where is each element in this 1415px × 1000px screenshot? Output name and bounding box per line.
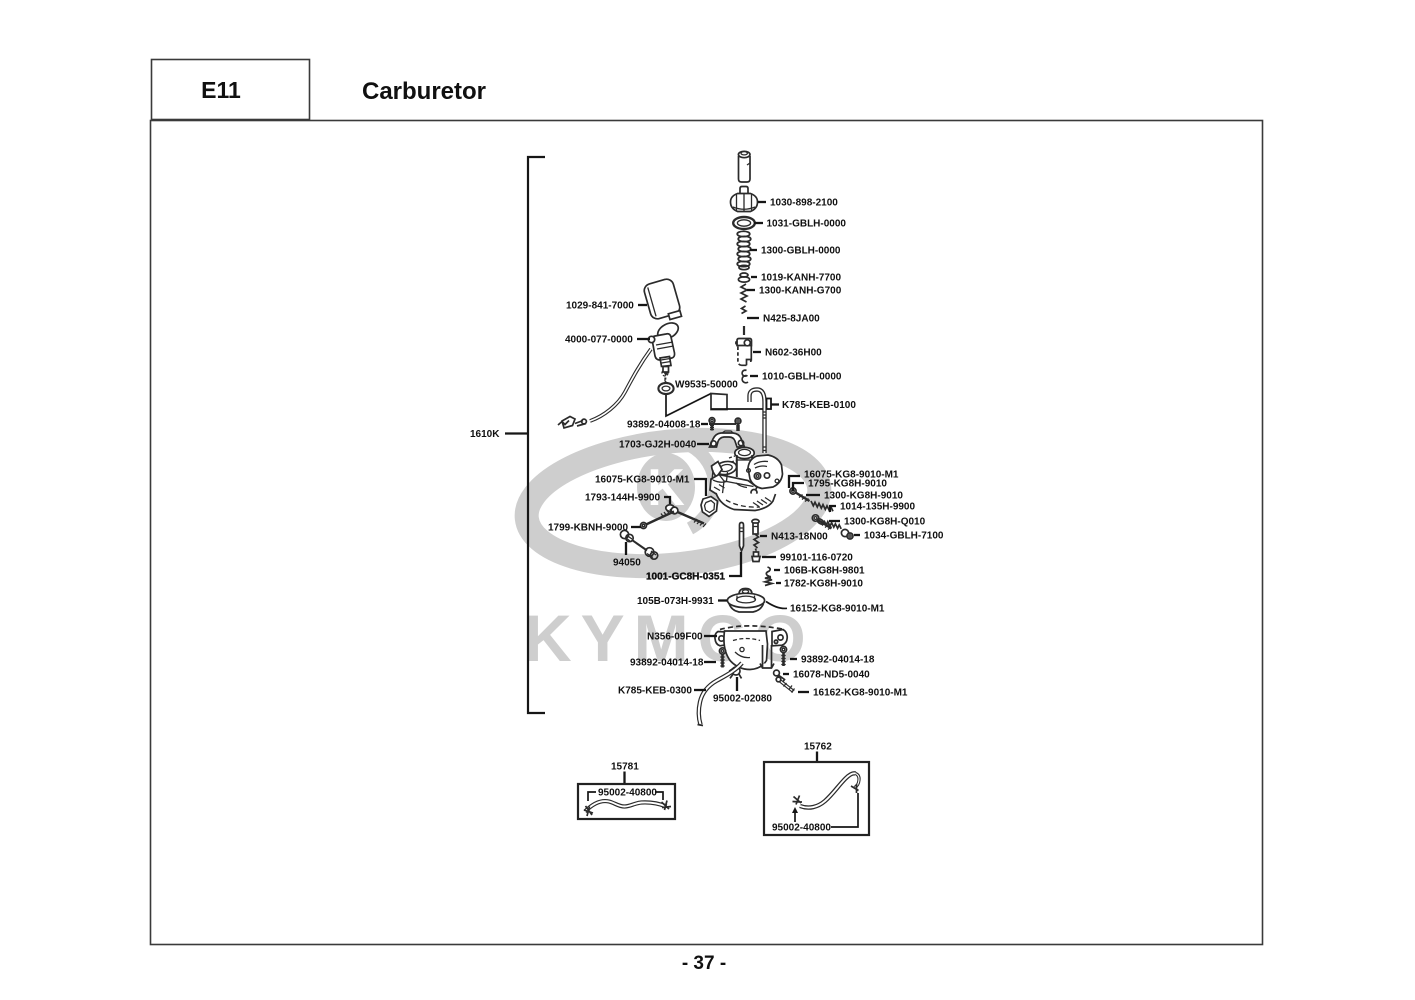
svg-text:15781: 15781 xyxy=(611,762,639,773)
svg-text:15762: 15762 xyxy=(804,742,832,753)
svg-text:1029-841-7000: 1029-841-7000 xyxy=(566,301,634,312)
svg-text:N413-18N00: N413-18N00 xyxy=(771,532,828,543)
svg-text:K785-KEB-0300: K785-KEB-0300 xyxy=(618,686,692,697)
svg-text:1001-GC8H-0351: 1001-GC8H-0351 xyxy=(646,572,725,583)
svg-text:93892-04008-18: 93892-04008-18 xyxy=(627,420,701,431)
svg-text:N602-36H00: N602-36H00 xyxy=(765,348,822,359)
svg-text:95002-40800: 95002-40800 xyxy=(598,788,657,799)
svg-text:1795-KG8H-9010: 1795-KG8H-9010 xyxy=(808,479,887,490)
svg-text:1030-898-2100: 1030-898-2100 xyxy=(770,198,838,209)
svg-text:93892-04014-18: 93892-04014-18 xyxy=(630,658,704,669)
svg-text:16075-KG8-9010-M1: 16075-KG8-9010-M1 xyxy=(595,475,690,486)
svg-text:1300-GBLH-0000: 1300-GBLH-0000 xyxy=(761,246,841,257)
svg-text:Carburetor: Carburetor xyxy=(362,78,486,105)
svg-text:N356-09F00: N356-09F00 xyxy=(647,632,703,643)
svg-text:1799-KBNH-9000: 1799-KBNH-9000 xyxy=(548,523,628,534)
svg-text:1793-144H-9900: 1793-144H-9900 xyxy=(585,493,660,504)
svg-text:1300-KG8H-Q010: 1300-KG8H-Q010 xyxy=(844,517,926,528)
svg-text:16162-KG8-9010-M1: 16162-KG8-9010-M1 xyxy=(813,688,908,699)
svg-text:1300-KANH-G700: 1300-KANH-G700 xyxy=(759,286,842,297)
svg-text:1703-GJ2H-0040: 1703-GJ2H-0040 xyxy=(619,440,697,451)
svg-text:93892-04014-18: 93892-04014-18 xyxy=(801,655,875,666)
svg-text:16078-ND5-0040: 16078-ND5-0040 xyxy=(793,670,870,681)
svg-text:N425-8JA00: N425-8JA00 xyxy=(763,314,820,325)
svg-text:1782-KG8H-9010: 1782-KG8H-9010 xyxy=(784,579,863,590)
svg-text:1034-GBLH-7100: 1034-GBLH-7100 xyxy=(864,531,944,542)
svg-text:1019-KANH-7700: 1019-KANH-7700 xyxy=(761,273,841,284)
svg-text:16152-KG8-9010-M1: 16152-KG8-9010-M1 xyxy=(790,604,885,615)
svg-text:105B-073H-9931: 105B-073H-9931 xyxy=(637,596,714,607)
svg-text:1014-135H-9900: 1014-135H-9900 xyxy=(840,502,915,513)
svg-text:1031-GBLH-0000: 1031-GBLH-0000 xyxy=(767,219,847,230)
svg-text:1300-KG8H-9010: 1300-KG8H-9010 xyxy=(824,491,903,502)
svg-text:94050: 94050 xyxy=(613,558,641,569)
svg-text:E11: E11 xyxy=(201,77,241,103)
svg-text:1610K: 1610K xyxy=(470,429,500,440)
svg-text:99101-116-0720: 99101-116-0720 xyxy=(780,553,853,564)
svg-text:95002-02080: 95002-02080 xyxy=(713,694,772,705)
svg-text:95002-40800: 95002-40800 xyxy=(772,823,831,834)
svg-text:106B-KG8H-9801: 106B-KG8H-9801 xyxy=(784,566,865,577)
svg-text:1010-GBLH-0000: 1010-GBLH-0000 xyxy=(762,372,842,383)
svg-text:W9535-50000: W9535-50000 xyxy=(675,380,738,391)
svg-text:K785-KEB-0100: K785-KEB-0100 xyxy=(782,400,856,411)
svg-text:- 37 -: - 37 - xyxy=(682,953,726,974)
svg-text:4000-077-0000: 4000-077-0000 xyxy=(565,335,633,346)
